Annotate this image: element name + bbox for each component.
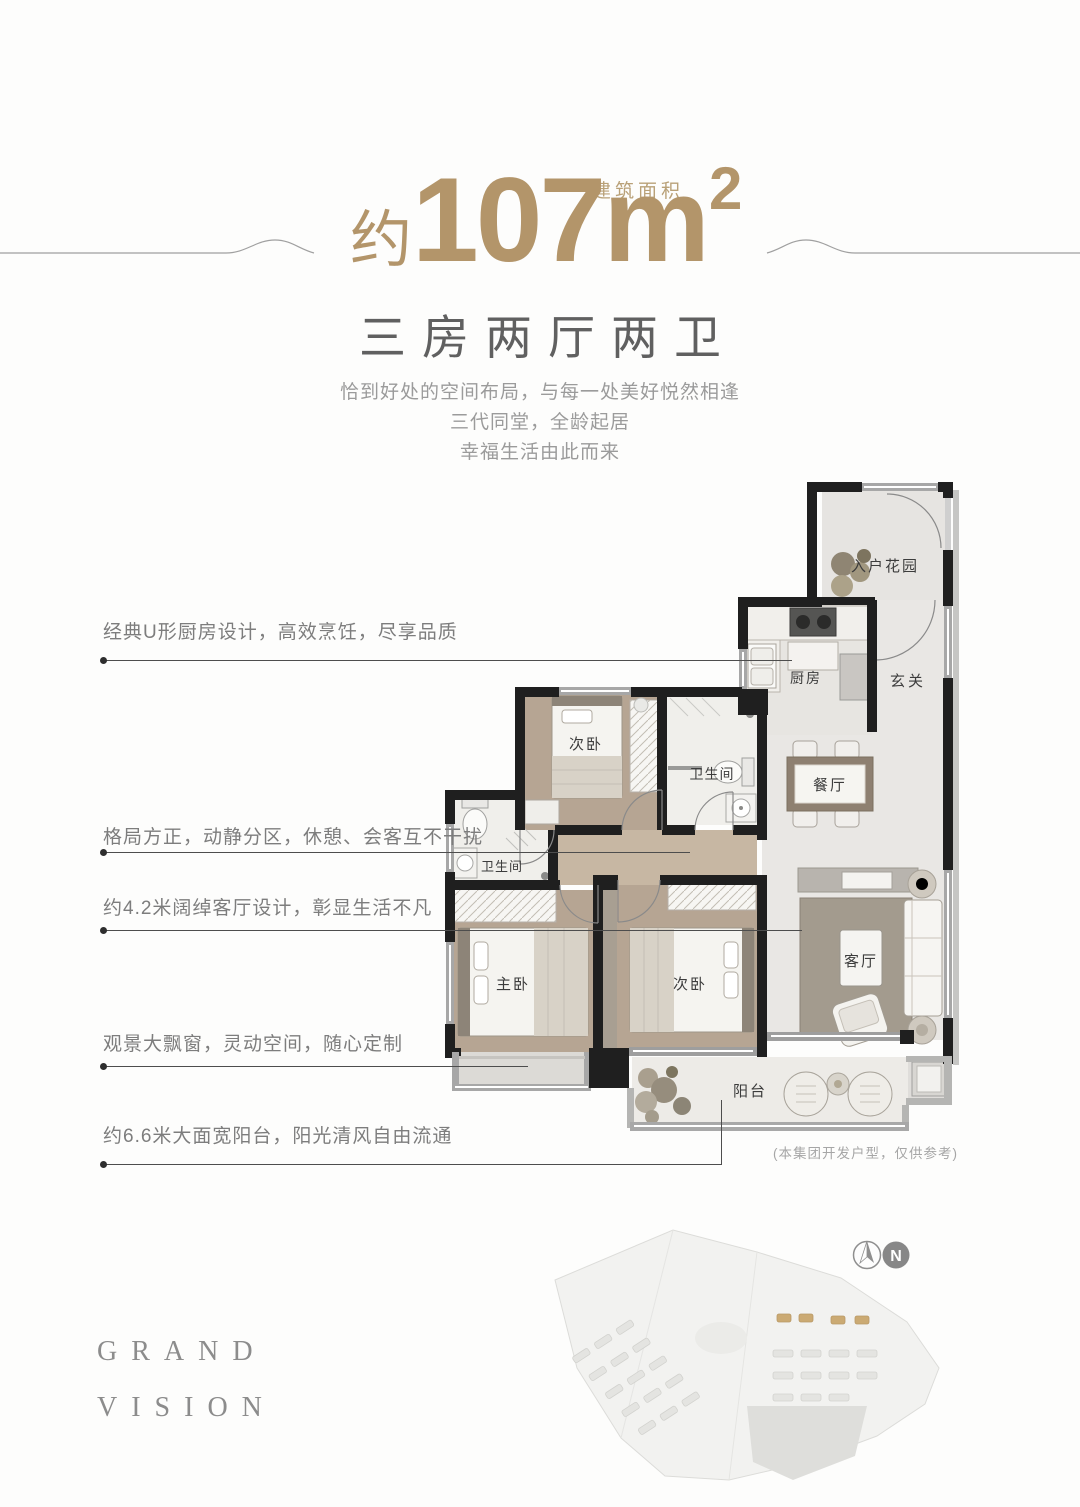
callout-line-living xyxy=(104,930,802,931)
poster-page: 建筑面积 约107m2 三房两厅两卫 恰到好处的空间布局，与每一处美好悦然相逢 … xyxy=(0,0,1080,1507)
deco-line-left xyxy=(0,238,318,256)
callout-line-balcony xyxy=(104,1164,722,1165)
compass-n-label: N xyxy=(890,1248,902,1265)
brand-line-2: VISION xyxy=(97,1392,276,1424)
tagline-1: 恰到好处的空间布局，与每一处美好悦然相逢 xyxy=(0,378,1080,408)
deco-line-right xyxy=(763,238,1080,256)
layout-title: 三房两厅两卫 xyxy=(0,299,1080,368)
sofa xyxy=(904,900,942,1016)
wardrobe-bedroom2 xyxy=(630,700,658,792)
room-label-balcony: 阳台 xyxy=(733,1083,767,1100)
floorplan: 入户花园 玄关 厨房 餐厅 次卧 卫生间 卫生间 主卧 次卧 客厅 阳台 xyxy=(438,476,972,1182)
callout-baywindow: 观景大飘窗，灵动空间，随心定制 xyxy=(103,1029,403,1056)
callout-line-zoning xyxy=(104,852,690,853)
room-label-bedroom2: 次卧 xyxy=(569,736,603,753)
callout-line-balcony-vertical xyxy=(721,1100,722,1165)
brand-line-1: GRAND xyxy=(97,1336,267,1368)
area-number: 107m xyxy=(412,153,707,287)
callout-balcony: 约6.6米大面宽阳台，阳光清风自由流通 xyxy=(103,1121,452,1148)
tagline-3: 幸福生活由此而来 xyxy=(0,438,1080,468)
room-label-master: 主卧 xyxy=(496,976,530,993)
callout-zoning: 格局方正，动静分区，休憩、会客互不干扰 xyxy=(103,822,483,849)
callout-living: 约4.2米阔绰客厅设计，彰显生活不凡 xyxy=(103,893,432,920)
room-label-kitchen: 厨房 xyxy=(790,670,822,686)
exterior-band xyxy=(953,490,959,1065)
room-label-foyer: 玄关 xyxy=(890,673,926,690)
room-label-bath2: 卫生间 xyxy=(481,859,523,874)
room-label-living: 客厅 xyxy=(844,953,878,970)
callout-kitchen: 经典U形厨房设计，高效烹饪，尽享品质 xyxy=(103,617,458,644)
taglines: 恰到好处的空间布局，与每一处美好悦然相逢 三代同堂，全龄起居 幸福生活由此而来 xyxy=(0,378,1080,468)
wardrobe-master xyxy=(452,888,556,922)
room-label-bedroom3: 次卧 xyxy=(673,976,707,993)
area-superscript: 2 xyxy=(709,155,742,222)
room-label-entry-garden: 入户花园 xyxy=(851,558,919,575)
area-prefix: 约 xyxy=(350,206,412,275)
room-label-bath1: 卫生间 xyxy=(690,766,735,782)
compass-icon: N xyxy=(851,1232,913,1278)
disclaimer: (本集团开发户型，仅供参考) xyxy=(773,1142,958,1162)
room-label-dining: 餐厅 xyxy=(813,777,847,794)
callout-line-kitchen xyxy=(104,660,792,661)
tagline-2: 三代同堂，全龄起居 xyxy=(0,408,1080,438)
wardrobe-bedroom3 xyxy=(668,882,756,910)
area-title: 约107m2 xyxy=(350,160,740,280)
callout-line-baywindow xyxy=(104,1066,528,1067)
